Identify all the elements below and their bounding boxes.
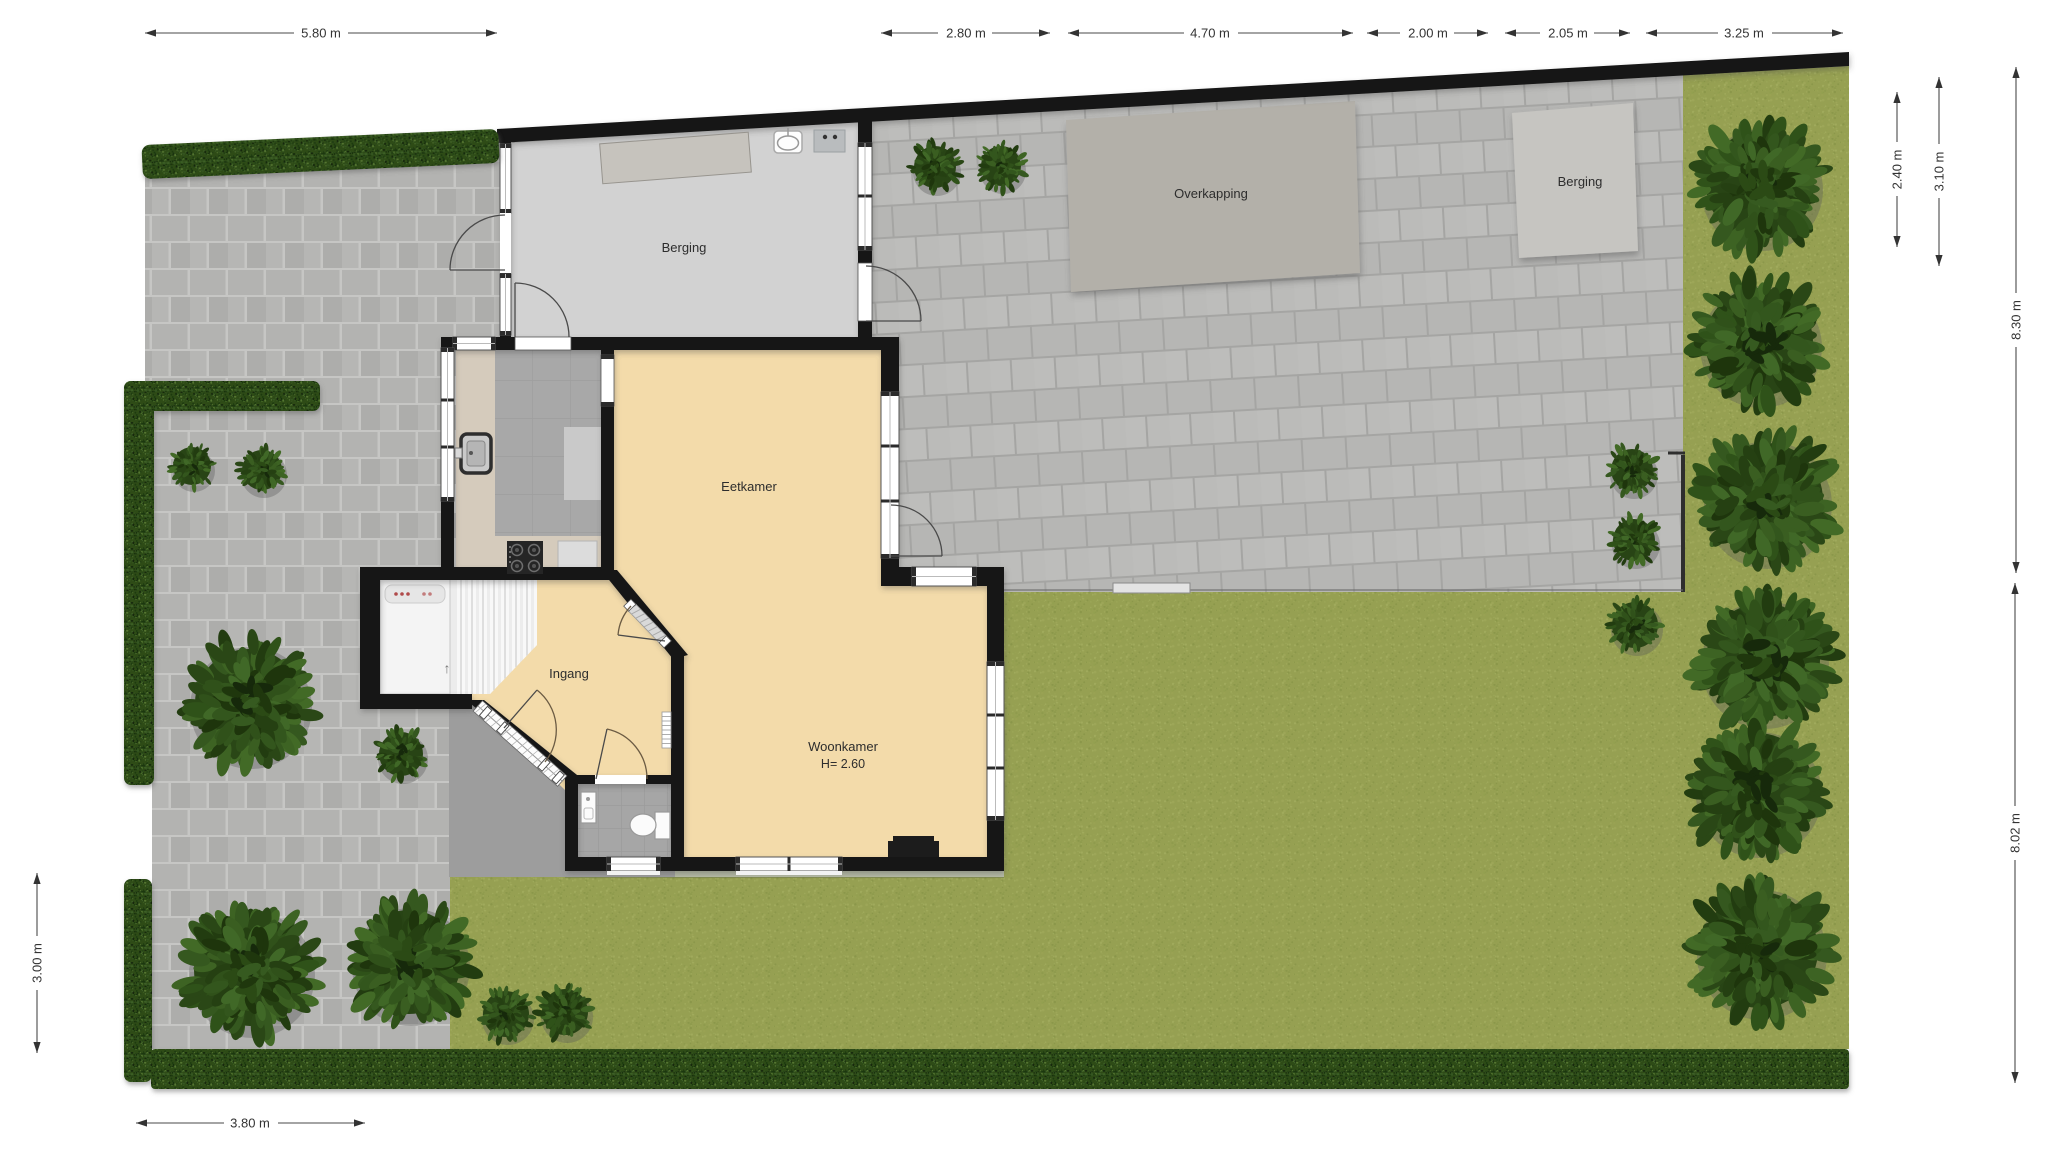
svg-text:3.10 m: 3.10 m	[1932, 152, 1947, 192]
svg-text:2.80 m: 2.80 m	[946, 26, 986, 41]
svg-text:5.80 m: 5.80 m	[301, 26, 341, 41]
svg-text:8.02 m: 8.02 m	[2008, 813, 2023, 853]
svg-text:3.00 m: 3.00 m	[30, 943, 45, 983]
svg-text:H= 2.60: H= 2.60	[821, 757, 865, 771]
svg-text:Berging: Berging	[662, 240, 707, 255]
svg-text:8.30 m: 8.30 m	[2009, 300, 2024, 340]
svg-text:Berging: Berging	[1558, 174, 1603, 189]
svg-text:↑: ↑	[444, 660, 451, 676]
svg-text:Woonkamer: Woonkamer	[808, 739, 879, 754]
svg-text:3.80 m: 3.80 m	[230, 1116, 270, 1131]
svg-text:3.25 m: 3.25 m	[1724, 26, 1764, 41]
svg-text:Overkapping: Overkapping	[1174, 186, 1248, 201]
svg-text:Ingang: Ingang	[549, 666, 589, 681]
svg-text:2.05 m: 2.05 m	[1548, 26, 1588, 41]
svg-text:2.40 m: 2.40 m	[1890, 150, 1905, 190]
svg-text:2.00 m: 2.00 m	[1408, 26, 1448, 41]
svg-text:4.70 m: 4.70 m	[1190, 26, 1230, 41]
svg-text:Eetkamer: Eetkamer	[721, 479, 777, 494]
